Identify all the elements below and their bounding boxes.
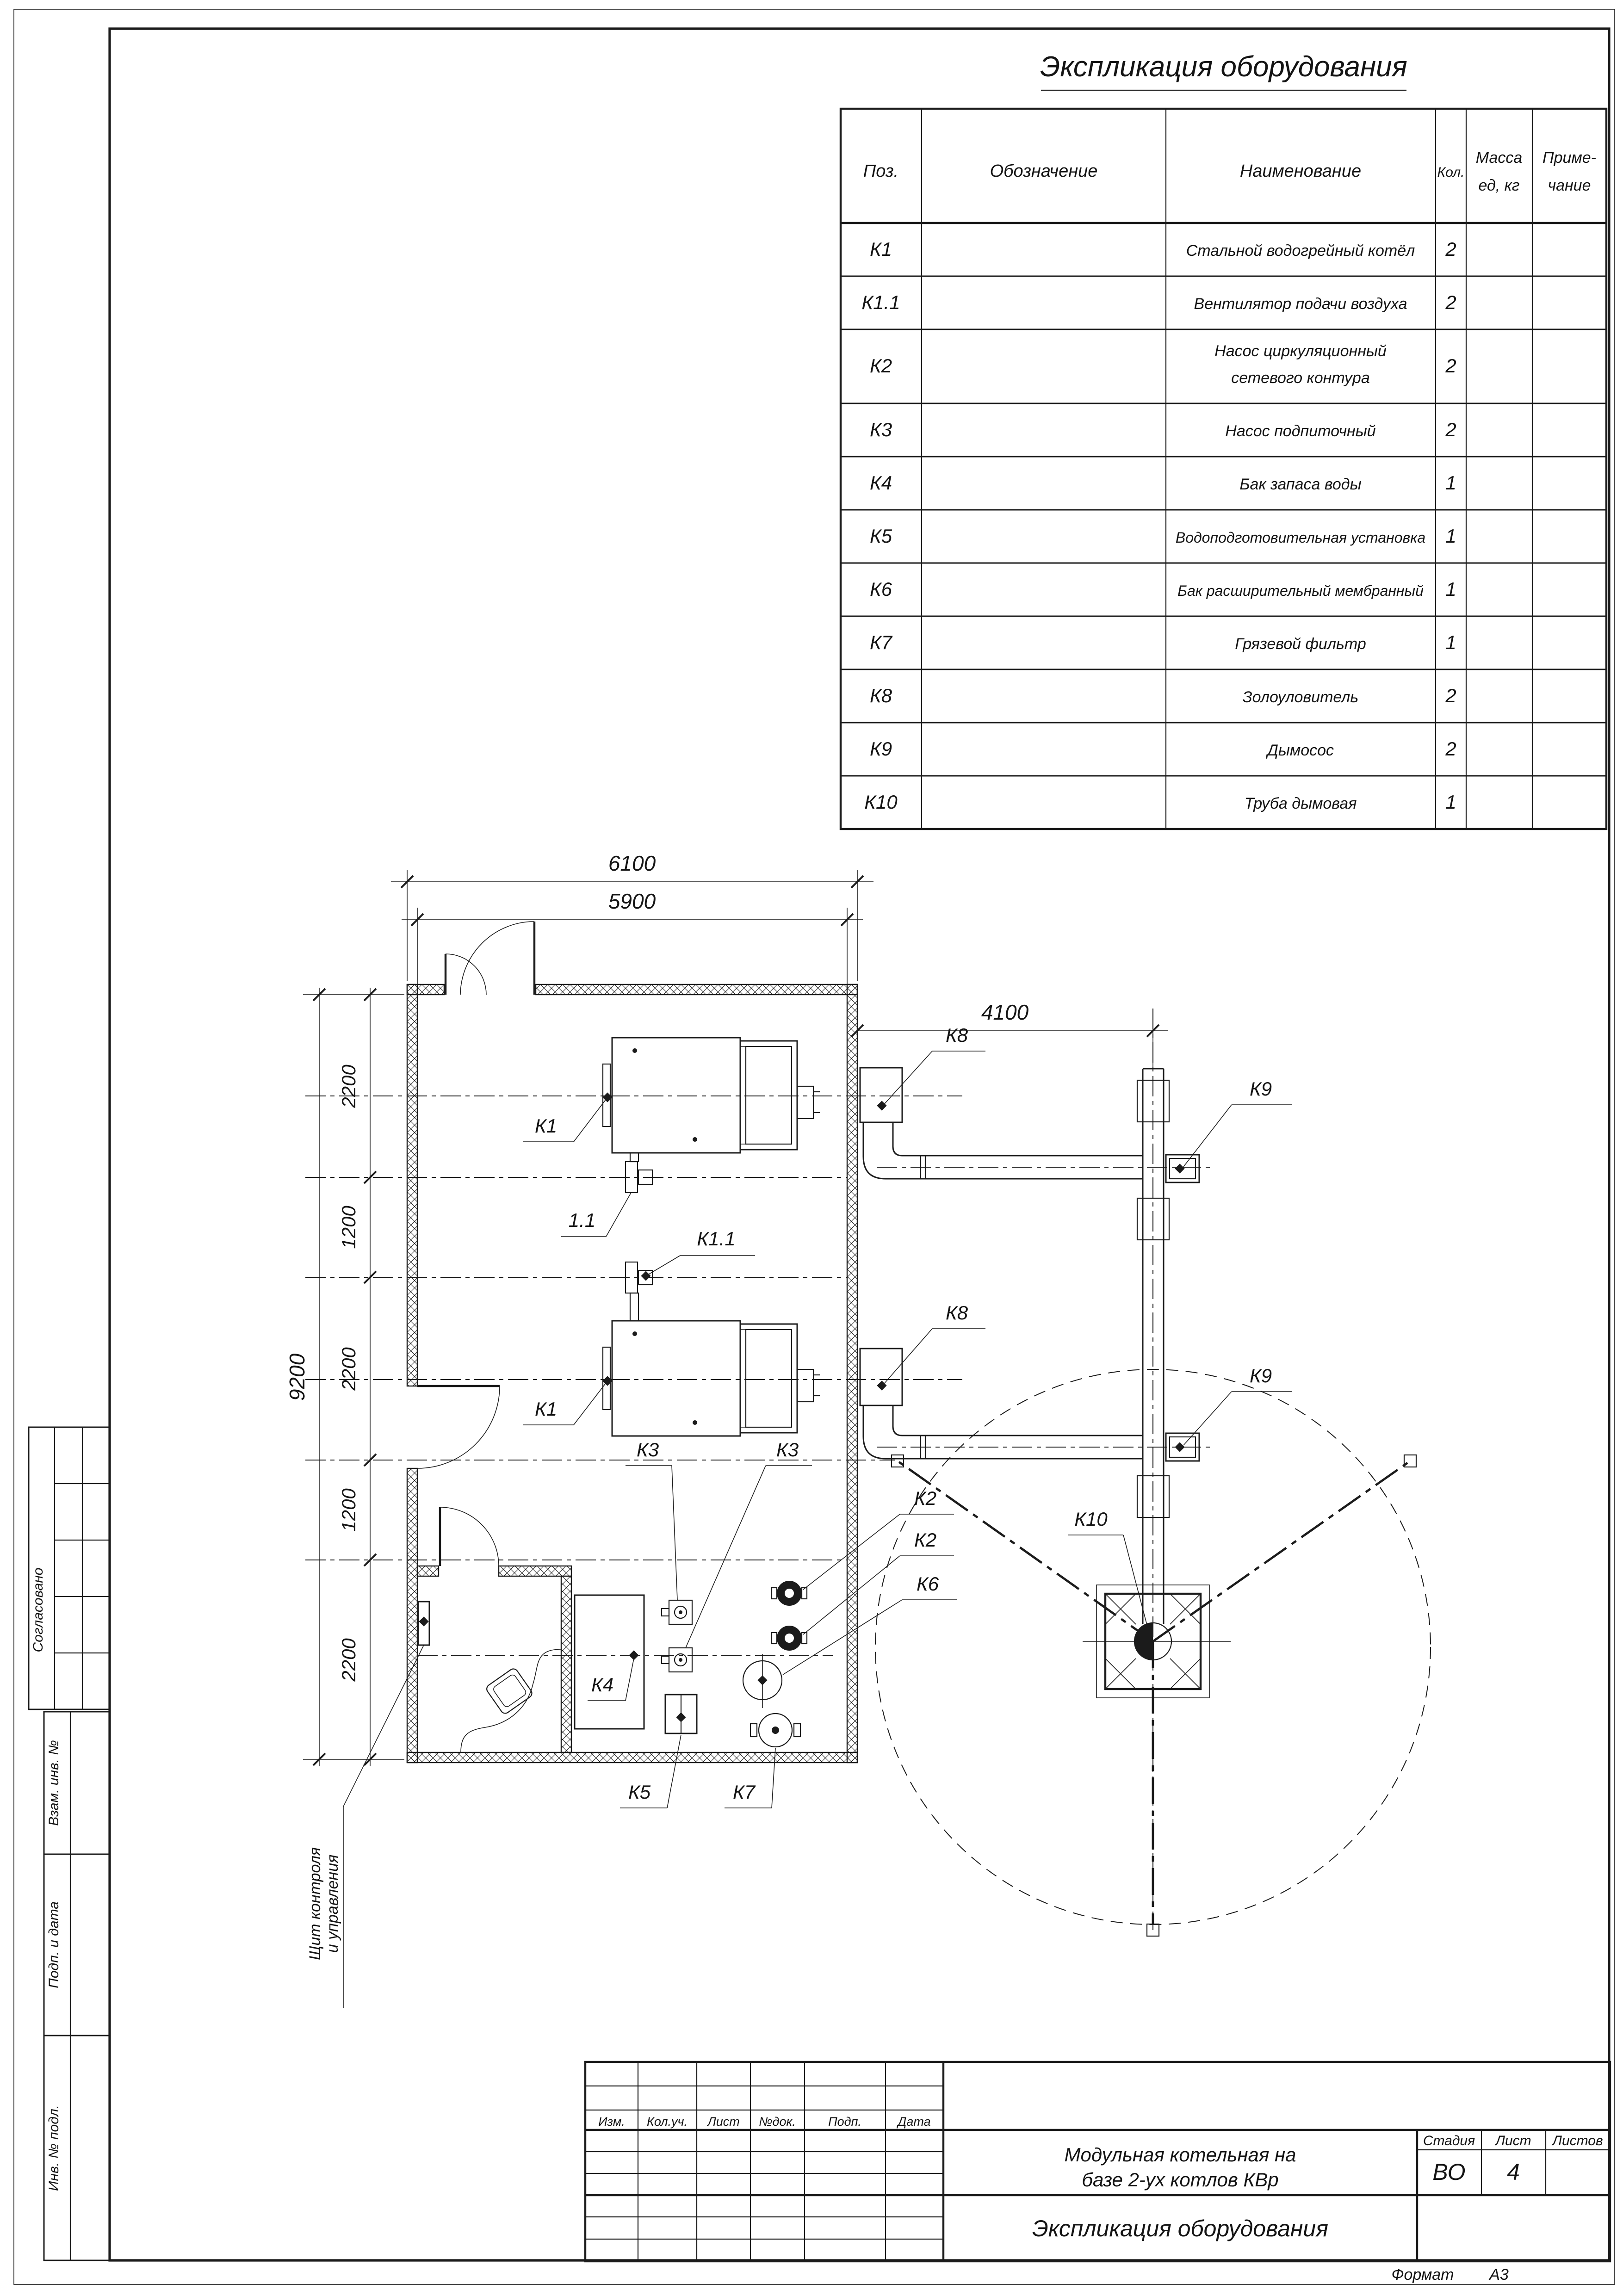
table-header: Поз. Обозначение Наименование Кол. Масса… <box>863 149 1596 194</box>
svg-text:Золоуловитель: Золоуловитель <box>1243 688 1359 706</box>
svg-text:К5: К5 <box>628 1781 651 1803</box>
svg-text:2: 2 <box>1445 685 1456 706</box>
boiler-1 <box>603 1038 820 1153</box>
svg-text:К6: К6 <box>917 1573 939 1595</box>
dim-6100: 6100 <box>608 851 656 875</box>
sheet-label: Лист <box>1494 2133 1531 2148</box>
svg-text:К8: К8 <box>870 685 892 706</box>
svg-text:2: 2 <box>1445 291 1456 313</box>
ash-collector-bottom <box>860 1349 902 1405</box>
doc-title: Экспликация оборудования <box>1032 2216 1328 2241</box>
svg-text:К1: К1 <box>870 238 892 260</box>
svg-text:и управления: и управления <box>324 1855 341 1953</box>
side-door <box>417 1386 500 1468</box>
svg-text:К8: К8 <box>946 1024 968 1046</box>
dim-seg2: 1200 <box>338 1206 359 1249</box>
svg-text:К9: К9 <box>1250 1365 1272 1386</box>
table-row: К7Грязевой фильтр1 <box>870 631 1456 653</box>
svg-text:К3: К3 <box>776 1439 799 1461</box>
svg-text:К5: К5 <box>870 525 892 547</box>
svg-text:К3: К3 <box>870 419 892 440</box>
floor-channel <box>461 1649 561 1752</box>
svg-text:К4: К4 <box>870 472 892 494</box>
svg-text:К2: К2 <box>914 1487 936 1509</box>
col-mass: Масса <box>1476 149 1523 167</box>
label-k6: К6 <box>783 1573 957 1675</box>
svg-text:базе 2-ух котлов КВр: базе 2-ух котлов КВр <box>1082 2169 1278 2191</box>
format-note: Формат А3 <box>1391 2266 1508 2284</box>
svg-text:Вентилятор подачи воздуха: Вентилятор подачи воздуха <box>1194 295 1407 313</box>
inv-orig-label: Инв. № подл. <box>46 2105 62 2191</box>
svg-text:1: 1 <box>1445 631 1456 653</box>
label-fan-top: 1.1 <box>561 1193 631 1237</box>
svg-text:Стальной водогрейный котёл: Стальной водогрейный котёл <box>1186 242 1415 260</box>
format-value: А3 <box>1488 2266 1509 2284</box>
sign-date-label: Подп. и дата <box>46 1901 62 1988</box>
col-name: Наименование <box>1240 161 1361 181</box>
pump-k3-1 <box>662 1600 692 1624</box>
dim-seg3: 2200 <box>338 1347 359 1391</box>
table-row: К4Бак запаса воды1 <box>870 472 1456 494</box>
water-tank-k4 <box>575 1595 644 1729</box>
svg-text:К4: К4 <box>591 1674 613 1696</box>
expansion-tank-k6 <box>743 1654 782 1708</box>
fan-1-1 <box>626 1153 652 1193</box>
svg-text:К6: К6 <box>870 578 892 600</box>
drawing-sheet: Согласовано Взам. инв. № Подп. и дата Ин… <box>0 0 1623 2296</box>
smoke-exhauster-top <box>1166 1155 1199 1182</box>
svg-text:сетевого контура: сетевого контура <box>1231 369 1369 387</box>
table-row: К1.1Вентилятор подачи воздуха2 <box>861 291 1456 313</box>
svg-text:Лист: Лист <box>706 2115 740 2129</box>
label-k3-2: К3 <box>686 1439 812 1648</box>
stage-value: ВО <box>1432 2159 1465 2185</box>
dim-seg4: 1200 <box>338 1488 359 1532</box>
replace-inv-block: Взам. инв. № <box>44 1712 110 1854</box>
svg-text:ед, кг: ед, кг <box>1478 177 1519 194</box>
doors <box>417 922 534 1566</box>
ash-collector-top <box>860 1068 902 1122</box>
filter-k7 <box>750 1714 800 1747</box>
table-title: Экспликация оборудования <box>1040 51 1407 83</box>
table-row: К1Стальной водогрейный котёл2 <box>870 238 1456 260</box>
svg-text:К3: К3 <box>637 1439 659 1461</box>
svg-text:1.1: 1.1 <box>569 1209 595 1231</box>
replace-inv-label: Взам. инв. № <box>46 1740 62 1826</box>
col-note: Приме- <box>1542 149 1596 167</box>
svg-text:К10: К10 <box>1074 1508 1108 1530</box>
svg-text:Водоподготовительная установка: Водоподготовительная установка <box>1176 529 1425 546</box>
svg-text:К1: К1 <box>535 1398 557 1420</box>
svg-text:Кол.уч.: Кол.уч. <box>647 2115 688 2129</box>
col-designation: Обозначение <box>990 161 1098 181</box>
format-label: Формат <box>1391 2266 1454 2284</box>
label-k3-1: К3 <box>626 1439 677 1600</box>
sheets-label: Листов <box>1551 2133 1603 2148</box>
col-qty: Кол. <box>1437 165 1465 180</box>
plan-labels: К1 1.1 К1.1 К1 К8 К8 К9 К9 К10 К2 К2 К6 … <box>523 1024 1292 1808</box>
table-row: К10Труба дымовая1 <box>864 791 1456 813</box>
table-row: К3Насос подпиточный2 <box>870 419 1456 440</box>
svg-text:К2: К2 <box>870 355 892 377</box>
equipment-table: Экспликация оборудования Поз. Обозначени… <box>841 51 1606 829</box>
pump-k2-2 <box>772 1626 807 1651</box>
svg-text:К9: К9 <box>870 738 892 760</box>
label-k4: К4 <box>588 1659 634 1701</box>
sheet-value: 4 <box>1507 2159 1520 2185</box>
title-block: Изм. Кол.уч. Лист №док. Подп. Дата Модул… <box>585 2062 1610 2261</box>
pump-k2-1 <box>772 1581 807 1606</box>
boiler-2 <box>603 1321 820 1436</box>
approved-label: Согласовано <box>31 1568 46 1652</box>
label-k9-top: К9 <box>1183 1078 1292 1167</box>
sink <box>485 1667 533 1715</box>
svg-text:Труба дымовая: Труба дымовая <box>1245 795 1357 812</box>
svg-text:К9: К9 <box>1250 1078 1272 1100</box>
dim-4100: 4100 <box>981 1000 1029 1024</box>
svg-text:Дата: Дата <box>896 2115 930 2129</box>
svg-text:2: 2 <box>1445 355 1456 377</box>
room-door <box>440 1507 499 1566</box>
label-k1-top: К1 <box>523 1092 613 1142</box>
table-row: К8Золоуловитель2 <box>870 685 1456 706</box>
dim-seg5: 2200 <box>338 1638 359 1682</box>
approved-block: Согласовано <box>29 1427 110 1709</box>
margin-stamps: Согласовано Взам. инв. № Подп. и дата Ин… <box>29 1427 110 2260</box>
revision-headers: Изм. Кол.уч. Лист №док. Подп. Дата <box>598 2115 930 2129</box>
floor-plan: 6100 5900 4100 2200 1200 2200 1200 2200 … <box>285 851 1431 2008</box>
svg-text:2: 2 <box>1445 238 1456 260</box>
sign-date-block: Подп. и дата <box>44 1854 110 2036</box>
label-k5: К5 <box>620 1735 681 1808</box>
svg-text:Грязевой фильтр: Грязевой фильтр <box>1235 635 1366 653</box>
label-fan-mid: К1.1 <box>641 1228 755 1281</box>
stage-label: Стадия <box>1423 2133 1475 2148</box>
svg-text:№док.: №док. <box>759 2115 795 2129</box>
svg-text:К7: К7 <box>870 631 893 653</box>
svg-text:1: 1 <box>1445 578 1456 600</box>
pump-k3-2 <box>662 1648 692 1672</box>
axes <box>305 1009 1210 1930</box>
svg-text:Насос подпиточный: Насос подпиточный <box>1225 422 1375 440</box>
dim-seg1: 2200 <box>338 1064 359 1108</box>
water-treatment-k5 <box>665 1695 697 1733</box>
table-rows: К1Стальной водогрейный котёл2 К1.1Вентил… <box>861 238 1456 813</box>
svg-text:чание: чание <box>1548 177 1591 194</box>
label-k1-bottom: К1 <box>523 1376 613 1425</box>
svg-text:2: 2 <box>1445 419 1456 440</box>
table-row: К2Насос циркуляционныйсетевого контура2 <box>870 342 1456 387</box>
svg-text:К1: К1 <box>535 1115 557 1137</box>
svg-text:К8: К8 <box>946 1302 968 1324</box>
svg-text:Бак запаса воды: Бак запаса воды <box>1239 476 1361 493</box>
svg-text:1: 1 <box>1445 525 1456 547</box>
label-k8-bottom: К8 <box>884 1302 985 1384</box>
label-k8-top: К8 <box>884 1024 985 1105</box>
control-panel-note: Щит контроля <box>306 1847 324 1960</box>
inv-orig-block: Инв. № подл. <box>44 2036 110 2260</box>
svg-text:К1.1: К1.1 <box>861 291 900 313</box>
svg-text:Изм.: Изм. <box>598 2115 625 2129</box>
entrance-door <box>446 922 534 995</box>
svg-text:1: 1 <box>1445 472 1456 494</box>
project-title: Модульная котельная на <box>1065 2144 1296 2166</box>
svg-text:Подп.: Подп. <box>828 2115 861 2129</box>
dim-5900: 5900 <box>608 889 656 913</box>
svg-text:Дымосос: Дымосос <box>1265 742 1334 759</box>
table-row: К6Бак расширительный мембранный1 <box>870 578 1456 600</box>
svg-text:К7: К7 <box>733 1781 756 1803</box>
svg-text:К10: К10 <box>864 791 898 813</box>
flue-ducts <box>863 1069 1169 1624</box>
dim-9200: 9200 <box>285 1353 309 1401</box>
svg-text:1: 1 <box>1445 791 1456 813</box>
fan-k1-1 <box>626 1262 652 1321</box>
table-row: К5Водоподготовительная установка1 <box>870 525 1456 547</box>
svg-text:К2: К2 <box>914 1529 936 1551</box>
table-row: К9Дымосос2 <box>870 738 1456 760</box>
svg-text:Насос циркуляционный: Насос циркуляционный <box>1214 342 1387 360</box>
col-pos: Поз. <box>863 161 898 181</box>
svg-text:2: 2 <box>1445 738 1456 760</box>
svg-text:К1.1: К1.1 <box>697 1228 735 1250</box>
svg-text:Бак расширительный мембранный: Бак расширительный мембранный <box>1177 582 1424 599</box>
